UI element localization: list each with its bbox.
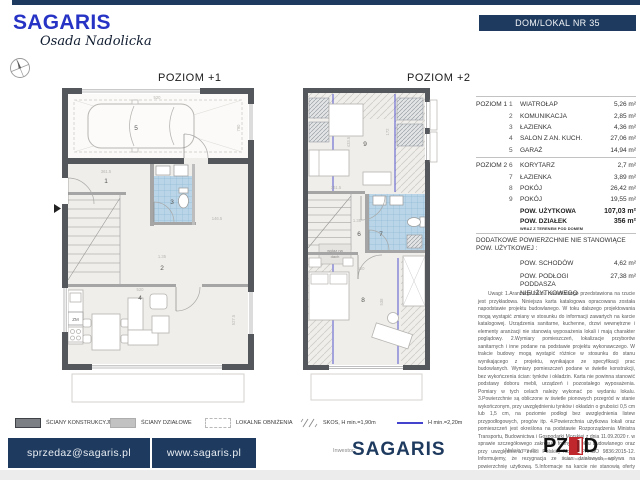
table-row: 8 POKÓJ 26,42 m² [476,183,636,194]
pzfd-logo: PZ D [543,436,598,456]
legend-structural-walls: ŚCIANY KONSTRUKCYJNE [15,417,117,429]
bed-head [309,122,329,142]
total-plot-area: POW. DZIAŁEK WRAZ Z TERENEM POD DOMEM 35… [476,216,636,232]
brand-name: SAGARIS [13,12,152,34]
washer [407,235,422,248]
brand-subtitle: Osada Nadolicka [40,34,152,49]
svg-text:wyłaz na: wyłaz na [327,248,343,253]
nightstand [343,258,353,266]
svg-text:361.5: 361.5 [331,185,342,190]
website-link[interactable]: www.sagaris.pl [152,438,256,468]
svg-text:4: 4 [138,295,142,302]
svg-text:6: 6 [357,231,361,238]
svg-text:520: 520 [358,266,366,271]
pzfd-subtitle: Polski Związek Firm Deweloperskich [543,457,615,461]
floor-plan-level1: 5 1 3 2 4 ZM 520 790 361.5 1.35 146.5 52… [52,86,266,416]
additional-row: POW. SCHODÓW 4,62 m² [476,258,636,271]
area-table: POZIOM 1 1 WIATROŁAP 5,26 m² 2 KOMUNIKAC… [476,95,636,301]
plan1-title: POZIOM +1 [158,72,222,84]
nightstand [309,258,321,267]
unit-number-badge: DOM/LOKAL NR 35 [479,15,636,31]
sink [390,196,403,205]
legend-slope: SKOS, H min.=1,90m [300,417,376,429]
svg-text:dach: dach [331,254,340,259]
plot-sublabel: WRAZ Z TERENEM POD DOMEM [520,226,592,231]
structural-wall-swatch [15,418,41,428]
svg-text:7: 7 [379,231,383,238]
svg-text:433.5: 433.5 [346,136,351,147]
svg-text:361.5: 361.5 [101,169,112,174]
bed-head [309,98,329,118]
table-row: POZIOM 1 1 WIATROŁAP 5,26 m² [476,99,636,110]
svg-text:520: 520 [154,95,162,100]
car-icon [88,100,194,152]
svg-text:520: 520 [137,287,145,292]
level-cell: POZIOM 1 [476,101,509,108]
hmin-line-swatch [397,422,423,424]
table-row: 3 ŁAZIENKA 4,36 m² [476,122,636,133]
door-icon [569,437,583,455]
sink [156,166,170,175]
svg-text:3: 3 [170,199,174,206]
svg-text:8: 8 [361,297,365,304]
floor-plan-level2: 9 6 7 8 wyłaz na dach 433.5 172 361.5 1.… [295,86,480,416]
divider [476,157,636,158]
brand-logo: SAGARIS Osada Nadolicka [13,12,152,49]
svg-text:2: 2 [160,265,164,272]
bed-single [329,104,363,136]
table-row: 9 POKÓJ 19,55 m² [476,194,636,205]
wardrobe [397,98,423,120]
svg-text:1.35: 1.35 [353,218,362,223]
legend-partition-walls: ŚCIANY DZIAŁOWE [110,417,192,429]
legend-local-drops: LOKALNE OBNIŻENIA [205,417,293,429]
skos-hatch-icon [300,418,318,428]
svg-text:ZM: ZM [72,317,79,322]
washer [174,165,188,176]
svg-text:1.35: 1.35 [158,254,167,259]
membership-label: Należymy do: [505,448,538,454]
svg-text:9: 9 [363,141,367,148]
plot-label: POW. DZIAŁEK [520,218,567,225]
svg-text:5: 5 [134,125,138,132]
svg-text:527.5: 527.5 [231,314,236,325]
plan2-title: POZIOM +2 [407,72,471,84]
table-row: 4 SALON Z AN. KUCH. 27,06 m² [476,133,636,144]
dresser [363,172,391,185]
legend-hmin-line: H min.=2,20m [397,417,462,429]
legend: ŚCIANY KONSTRUKCYJNE ŚCIANY DZIAŁOWE LOK… [0,417,640,431]
catalog-page: SAGARIS Osada Nadolicka DOM/LOKAL NR 35 … [0,0,640,480]
svg-text:790: 790 [236,124,241,132]
investor-logo: SAGARIS [352,439,446,461]
svg-text:172: 172 [385,128,390,136]
terrace-outline [72,374,244,402]
svg-text:146.5: 146.5 [212,216,223,221]
divider [476,96,636,97]
toilet [408,218,421,227]
local-drop-swatch [205,418,231,428]
svg-text:1: 1 [104,178,108,185]
partition-wall-swatch [110,418,136,428]
wardrobe [397,124,423,146]
email-link[interactable]: sprzedaz@sagaris.pl [8,438,150,468]
table-row: 5 GARAŻ 14,94 m² [476,145,636,156]
table-row: POZIOM 2 6 KORYTARZ 2,7 m² [476,160,636,171]
top-accent-bar [12,0,640,5]
bed-single [309,150,349,176]
bottom-strip [0,470,640,480]
toilet [179,194,189,208]
total-usable-area: POW. UŻYTKOWA 107,03 m² [476,206,636,216]
svg-text:538: 538 [379,298,384,306]
additional-areas-title: DODATKOWE POWIERZCHNIE NIE STANOWIĄCE PO… [476,237,636,254]
roof-outline [311,374,422,400]
table-row: 2 KOMUNIKACJA 2,85 m² [476,110,636,121]
entrance-arrow-icon [54,204,61,213]
divider [476,233,636,234]
compass-icon [8,56,32,80]
table-row: 7 ŁAZIENKA 3,89 m² [476,171,636,182]
stool [388,313,399,324]
